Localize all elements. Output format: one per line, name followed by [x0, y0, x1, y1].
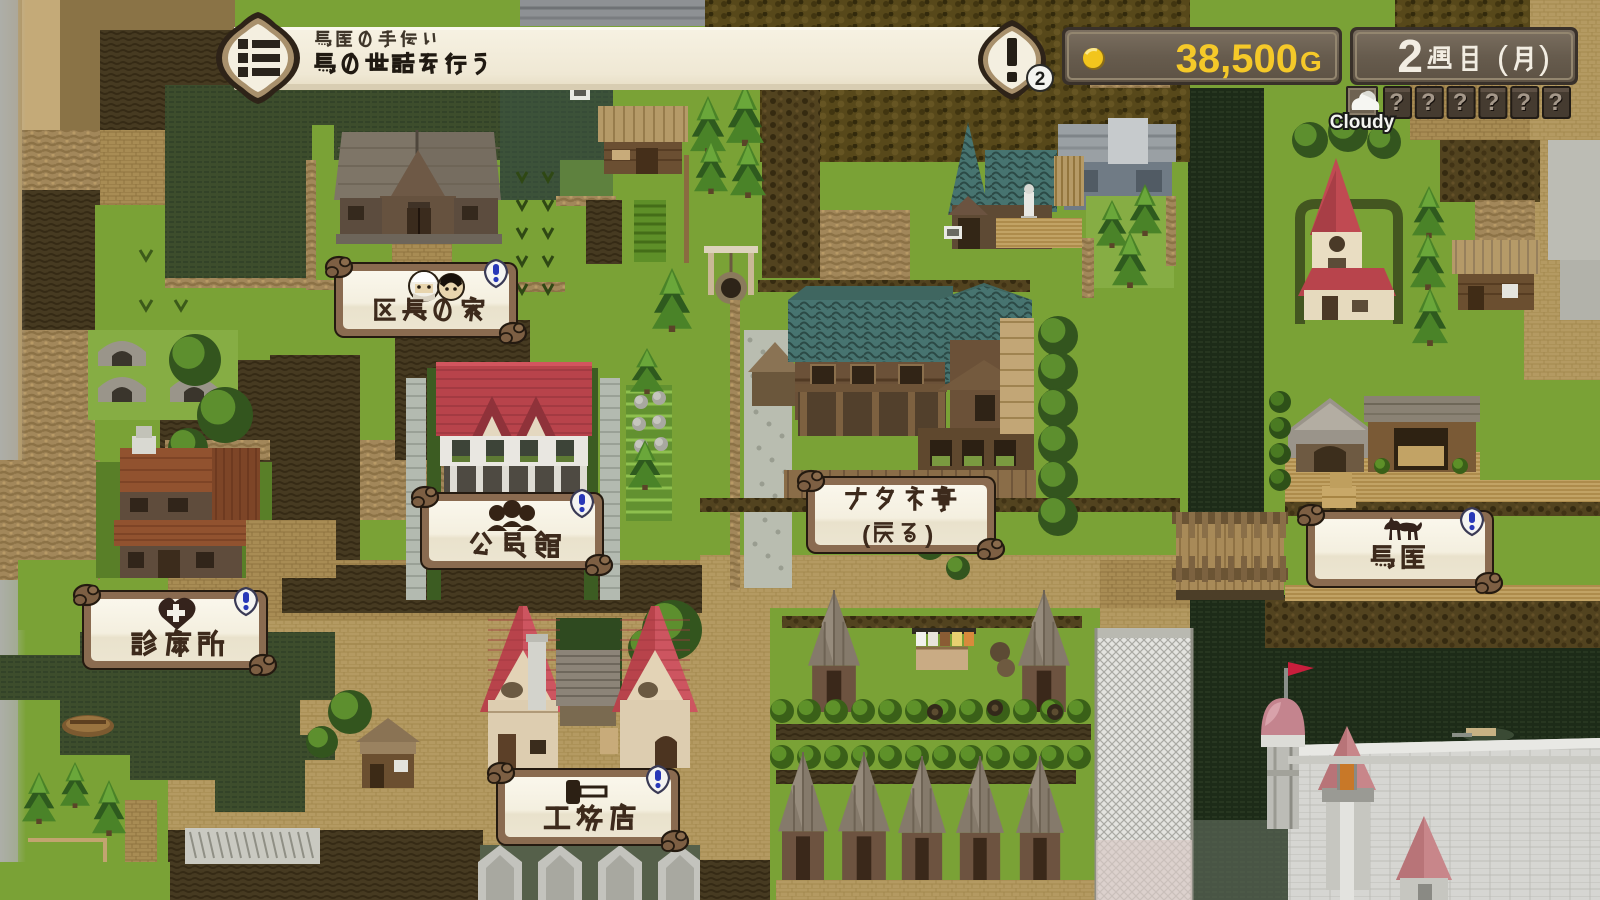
svg-text:Cloudy: Cloudy	[1330, 112, 1395, 133]
svg-text:?: ?	[1453, 89, 1468, 116]
svg-text:?: ?	[1485, 89, 1500, 116]
svg-text:(: (	[862, 521, 871, 549]
svg-text:?: ?	[1516, 89, 1531, 116]
svg-text:2: 2	[1035, 69, 1046, 90]
svg-text:): )	[1539, 39, 1550, 76]
svg-text:2: 2	[1397, 30, 1423, 82]
svg-text:(: (	[1497, 39, 1508, 76]
svg-text:): )	[925, 521, 933, 549]
svg-text:G: G	[1300, 46, 1322, 77]
svg-text:?: ?	[1421, 89, 1436, 116]
svg-text:?: ?	[1548, 89, 1563, 116]
svg-text:38,500: 38,500	[1176, 37, 1298, 81]
